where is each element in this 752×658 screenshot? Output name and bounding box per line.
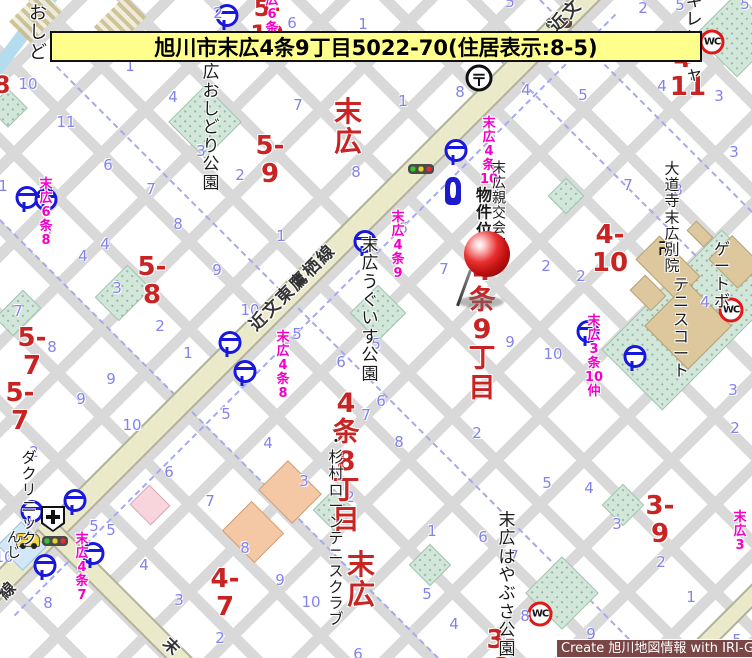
block-number: 4 xyxy=(584,479,594,497)
block-number: 7 xyxy=(623,176,633,194)
block-number: 7 xyxy=(293,96,303,114)
block-number: 4 xyxy=(449,615,459,633)
district-label: 末広 xyxy=(334,97,362,157)
block-number: 7 xyxy=(146,180,156,198)
block-number: 4 xyxy=(78,247,88,265)
district-label: 5-9 xyxy=(256,132,285,188)
block-number: 8 xyxy=(520,607,530,625)
block-number: 10 xyxy=(18,75,37,93)
district-label: 5-8 xyxy=(138,253,167,309)
block-number: 3 xyxy=(612,515,622,533)
address-banner: 旭川市末広4条9丁目5022-70(住居表示:8-5) xyxy=(50,31,702,62)
banner-title: 旭川市末広4条9丁目5022-70(住居表示:8-5) xyxy=(154,32,597,62)
bus-stop-label: 末広4条8 xyxy=(276,331,289,401)
block-number: 5 xyxy=(89,517,99,535)
post-office-icon: 〒 xyxy=(466,65,493,92)
block-number: 2 xyxy=(155,317,165,335)
bus-stop-label: 末広6条8 xyxy=(39,178,52,248)
block-number: 1 xyxy=(276,227,286,245)
bus-stop-icon xyxy=(219,331,236,357)
pin-shadow xyxy=(458,296,504,308)
traffic-light-icon xyxy=(408,164,434,174)
block-number: 6 xyxy=(478,528,488,546)
block-number: 8 xyxy=(394,433,404,451)
block-number: 7 xyxy=(439,260,449,278)
facility-label: んじ xyxy=(7,531,21,561)
block-number: 2 xyxy=(215,629,225,647)
block-number: 3 xyxy=(729,143,739,161)
facility-label: ・杉村ローンテニスクラブ xyxy=(328,433,343,627)
toilet-icon: WC xyxy=(528,602,553,627)
block-number: 4 xyxy=(521,81,531,99)
bus-stop-icon xyxy=(64,489,81,515)
block-number: 5 xyxy=(675,0,685,14)
block-number: 3 xyxy=(174,591,184,609)
block-number: 4 xyxy=(700,293,710,311)
block-number: 7 xyxy=(361,406,371,424)
block-number: 8 xyxy=(455,83,465,101)
facility-label: ゲートボ xyxy=(714,240,730,309)
bus-stop-icon xyxy=(445,139,462,165)
block-number: 3 xyxy=(714,87,724,105)
facility-label: 大道寺 末広別院 xyxy=(664,160,679,273)
block-number: 5 xyxy=(106,521,116,539)
block-number: 2 xyxy=(656,553,666,571)
block-number: 9 xyxy=(212,261,222,279)
block-number: 1 xyxy=(686,588,696,606)
block-number: 5 xyxy=(221,405,231,423)
bus-stop-icon xyxy=(16,186,33,212)
district-label: 3-9 xyxy=(646,492,675,548)
block-number: 8 xyxy=(173,215,183,233)
block-number: 2 xyxy=(213,4,223,22)
district-label: 4-7 xyxy=(211,565,240,621)
block-number: 9 xyxy=(106,370,116,388)
block-number: 1 xyxy=(183,344,193,362)
property-pin xyxy=(464,231,510,277)
block-number: 6 xyxy=(376,392,386,410)
block-number: 8 xyxy=(351,163,361,181)
block-number: 9 xyxy=(275,571,285,589)
block-number: 8 xyxy=(43,594,53,612)
block-number: 6 xyxy=(164,463,174,481)
block-number: 7 xyxy=(205,492,215,510)
district-label: 5-7 xyxy=(18,324,47,380)
bus-stop-label: 末広3条 10仲 xyxy=(585,315,603,399)
block-number: 8 xyxy=(240,539,250,557)
block-number: 6 xyxy=(353,645,363,658)
block-number: 1 xyxy=(398,92,408,110)
bus-stop-label: 末広4条9 xyxy=(391,211,404,281)
bus-stop-icon xyxy=(34,554,51,580)
block-number: 8 xyxy=(47,338,57,356)
district-label: 4条9丁目 xyxy=(469,257,496,403)
block-number: 1 xyxy=(0,177,8,195)
monument-icon xyxy=(445,177,461,205)
block-number: 2 xyxy=(576,267,586,285)
block-number: 7 xyxy=(13,302,23,320)
block-number: 5 xyxy=(505,0,515,11)
block-number: 9 xyxy=(505,333,515,351)
block-number: 3 xyxy=(728,381,738,399)
block-number: 10 xyxy=(301,593,320,611)
bus-stop-icon xyxy=(234,360,251,386)
facility-label: ダクリニック xyxy=(21,449,36,546)
block-number: 2 xyxy=(638,0,648,17)
block-number: 4 xyxy=(168,88,178,106)
district-label: 8 xyxy=(0,73,10,99)
block-number: 5 xyxy=(578,86,588,104)
block-number: 5 xyxy=(422,585,432,603)
bus-stop-label: 末広3 xyxy=(733,511,746,553)
block-number: 2 xyxy=(541,257,551,275)
block-number: 2 xyxy=(235,166,245,184)
block-number: 10 xyxy=(543,345,562,363)
facility-label: 末広 おしどり公園 xyxy=(203,46,220,193)
block-number: 6 xyxy=(287,14,297,32)
traffic-light-icon xyxy=(42,536,68,546)
block-number: 9 xyxy=(76,390,86,408)
map-attribution: Create 旭川地図情報 with IRI-GO xyxy=(556,639,752,658)
block-number: 4 xyxy=(263,434,273,452)
district-label: 末広 xyxy=(347,550,375,610)
facility-label: 末広 はやぶさ公園 xyxy=(499,512,516,658)
district-label: 5-7 xyxy=(6,379,35,435)
block-number: 1 xyxy=(427,522,437,540)
map-canvas[interactable]: WCWCWC〒卍 5261525511011432678514471884543… xyxy=(0,0,752,658)
block-number: 5 xyxy=(542,474,552,492)
block-number: 10 xyxy=(122,416,141,434)
bus-stop-label: 末広4条7 xyxy=(75,533,88,603)
facility-label: 末広 うぐいす公園 xyxy=(362,237,379,384)
facility-label: テニスコート xyxy=(673,276,689,380)
block-number: 4 xyxy=(657,77,667,95)
block-number: 5 xyxy=(292,325,302,343)
block-number: 6 xyxy=(103,156,113,174)
facility-label: おしど xyxy=(29,4,47,62)
district-label: 4-10 xyxy=(592,221,628,277)
block-number: 11 xyxy=(56,113,75,131)
block-number: 4 xyxy=(139,556,149,574)
bus-stop-icon xyxy=(624,345,641,371)
block-number: 4 xyxy=(100,235,110,253)
block-number: 2 xyxy=(472,424,482,442)
block-number: 3 xyxy=(299,472,309,490)
block-number: 2 xyxy=(730,419,740,437)
block-number: 5 xyxy=(740,0,750,13)
block-number: 3 xyxy=(112,279,122,297)
block-number: 6 xyxy=(336,353,346,371)
